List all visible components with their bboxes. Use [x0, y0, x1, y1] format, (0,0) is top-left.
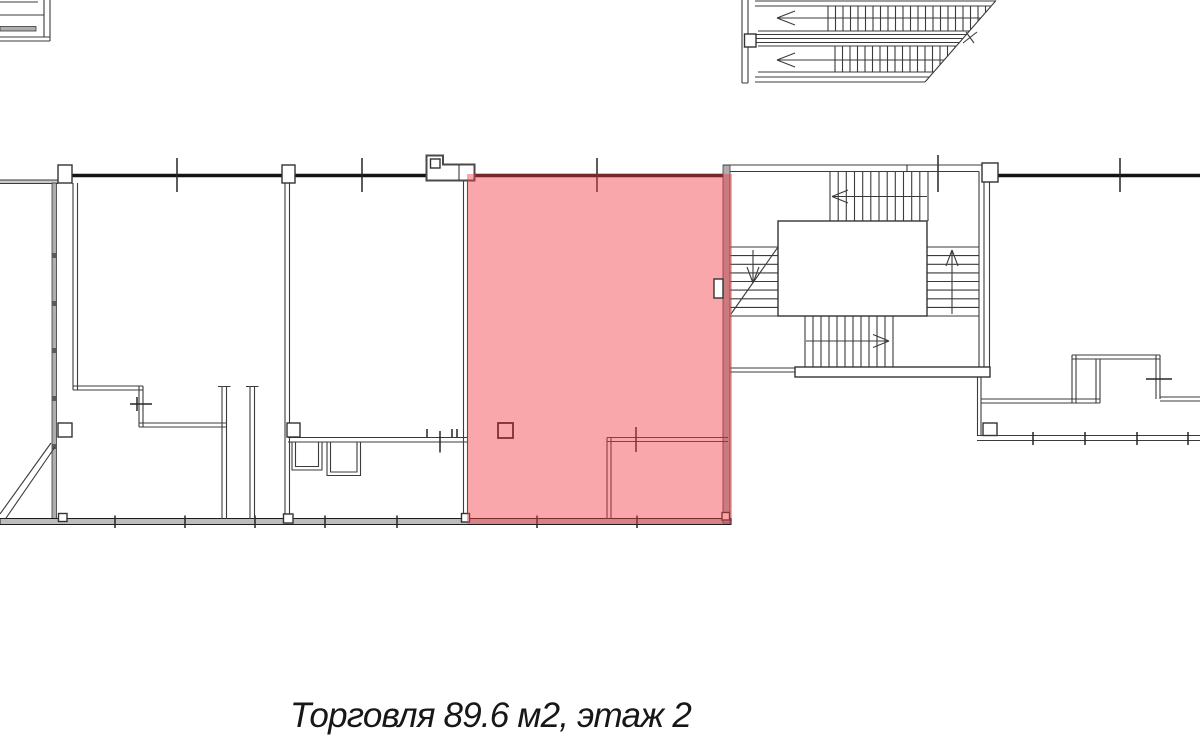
stair-arrow-left-down [747, 250, 759, 283]
page: Торговля 89.6 м2, этаж 2 [0, 0, 1200, 745]
stair-arrow-bottom-right [806, 335, 889, 348]
highlighted-unit[interactable] [467, 174, 732, 524]
escalator-direction-arrow-upper [777, 11, 990, 25]
top-left-partial-structure [0, 0, 50, 41]
column [983, 423, 997, 436]
caption: Торговля 89.6 м2, этаж 2 [290, 696, 930, 736]
right-section-walls [977, 355, 1200, 445]
stair-door [714, 279, 723, 298]
column [982, 163, 998, 182]
escalator-call-post [745, 34, 757, 47]
stair-bottom-wall [795, 367, 990, 377]
section-divider-wall [285, 183, 290, 515]
stair-landing [778, 221, 927, 316]
column [58, 165, 72, 183]
door-marker [130, 397, 152, 411]
wall-foot [284, 514, 294, 523]
column [58, 423, 72, 437]
staircase-block [723, 165, 990, 523]
stall-fixtures [292, 442, 361, 476]
floor-plan [0, 0, 1200, 745]
left-section-walls [73, 183, 290, 519]
ramp-diagonal-wall [0, 443, 55, 521]
wall-foot [59, 514, 68, 522]
column [282, 165, 295, 183]
escalators [742, 0, 1010, 86]
unit-left-wall [464, 181, 468, 514]
middle-section-walls [288, 181, 468, 514]
stair-treads-right-flight [928, 247, 980, 316]
corridor-walls [218, 387, 259, 520]
column [287, 423, 300, 437]
right-bottom-wall-ticks [1033, 432, 1188, 445]
